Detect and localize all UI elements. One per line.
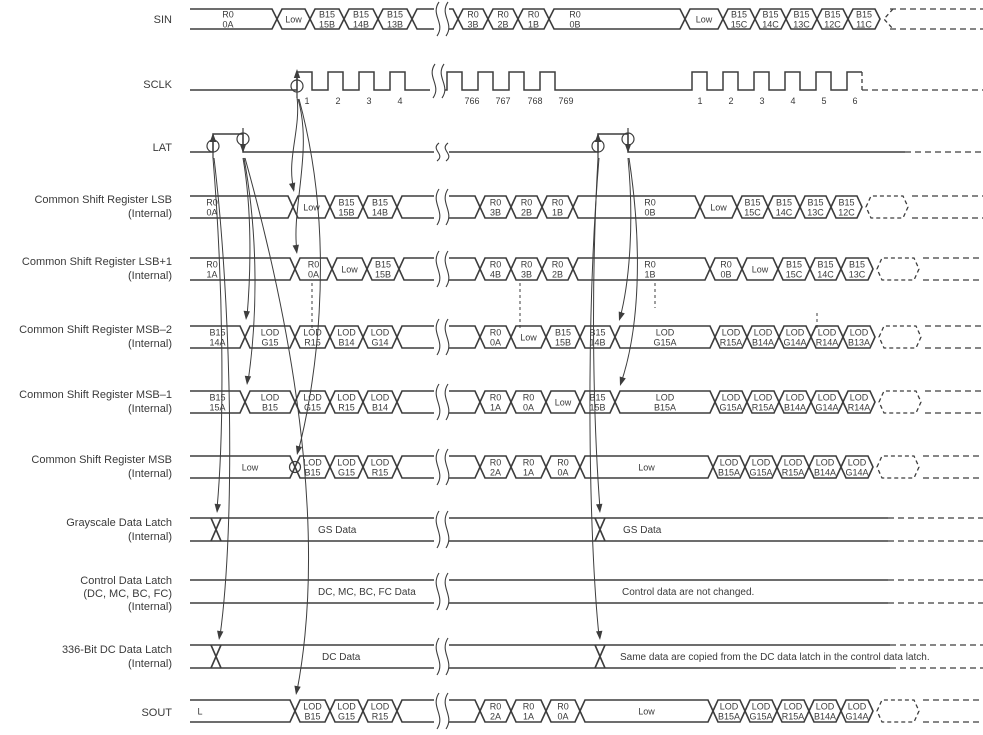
bus-cell-label: 13C: [849, 270, 866, 280]
bus-cell-label: LOD: [656, 328, 675, 338]
clock-number: 1: [304, 96, 309, 106]
bus-cell-label: LOD: [261, 393, 280, 403]
row-sin: SINR00ALowB1515BB1514BB1513BR03BR02BR01B…: [154, 2, 983, 36]
bus-cell-label: LOD: [816, 458, 835, 468]
bus-cell-label: G15: [338, 468, 355, 478]
bus-cell-label: B15: [838, 198, 854, 208]
bus-cell-label: Low: [520, 333, 537, 343]
row-label: Common Shift Register LSB+1: [22, 256, 172, 268]
bus-cell-label: 14C: [776, 208, 793, 218]
arrowhead: [596, 631, 603, 641]
bus-cell-label: LOD: [337, 458, 356, 468]
bus-cell-label: 0B: [569, 20, 580, 30]
bus-cell-label: R0: [644, 198, 656, 208]
bus-cell-label: LOD: [303, 458, 322, 468]
bus-cell-label: G14A: [783, 338, 806, 348]
clock-number: 5: [821, 96, 826, 106]
bus-cell-label: G14A: [845, 712, 868, 722]
bus-cell-label: LOD: [752, 702, 771, 712]
bus-cell-label: R14A: [816, 338, 839, 348]
row-label: Common Shift Register MSB–2: [19, 324, 172, 336]
bus-cell-label: G15: [338, 712, 355, 722]
bus-cell-label: R15: [304, 338, 321, 348]
bus-cell-label: 15B: [319, 20, 335, 30]
latch-transition: [595, 645, 605, 668]
bus-cell-label: R15: [372, 468, 389, 478]
bus-cell-label: B15: [807, 198, 823, 208]
bus-cell-label: LOD: [848, 458, 867, 468]
bus-cell-label: 3B: [467, 20, 478, 30]
bus-cell-label: 1B: [528, 20, 539, 30]
row-csr-lsb: Common Shift Register LSB(Internal)R00AL…: [34, 189, 983, 225]
bus-cell-label: LOD: [818, 393, 837, 403]
dashed-cell: [866, 196, 908, 218]
latch-transition: [211, 518, 221, 541]
bus-cell-label: B15: [589, 393, 605, 403]
bus-cell-label: B14A: [814, 468, 836, 478]
bus-cell-label: R0: [490, 198, 502, 208]
dashed-guides: [312, 283, 817, 331]
bus-cell-label: G14A: [845, 468, 868, 478]
bus-cell-label: 1A: [523, 468, 534, 478]
bus-cell-label: B15: [304, 712, 320, 722]
latch-text: Control data are not changed.: [622, 587, 754, 598]
bus-cell-label: R15A: [720, 338, 743, 348]
bus-cell-label: Low: [242, 463, 259, 473]
bus-cell-label: R15: [338, 403, 355, 413]
bus-cell-label: B15: [793, 10, 809, 20]
row-csr-msb1: Common Shift Register MSB–1(Internal)B15…: [19, 384, 983, 420]
annotation-arrow: [245, 158, 309, 691]
bus-cell-label: B14A: [814, 712, 836, 722]
dashed-cell: [877, 258, 919, 280]
bus-cell-label: R14A: [848, 403, 871, 413]
bus-cell-label: LOD: [303, 702, 322, 712]
bus-cell-label: R0: [490, 328, 502, 338]
bus-cell-label: B15: [375, 260, 391, 270]
arrowhead: [293, 686, 301, 696]
row-label: Control Data Latch: [80, 575, 172, 587]
bus-cell-label: B15A: [718, 468, 740, 478]
bus-cell-label: R0: [308, 260, 320, 270]
bus-cell-label: 2B: [521, 208, 532, 218]
row-csr-msb: Common Shift Register MSB(Internal)LowLO…: [31, 449, 983, 485]
arrowhead: [243, 311, 250, 321]
bus-cell-label: Low: [341, 265, 358, 275]
bus-cell-label: Low: [710, 203, 727, 213]
bus-cell-label: LOD: [371, 702, 390, 712]
bus-cell-label: 15B: [375, 270, 391, 280]
bus-cell-label: R0: [523, 458, 535, 468]
latch-transition: [595, 518, 605, 541]
bus-cell-label: 15B: [338, 208, 354, 218]
latch-text: DC, MC, BC, FC Data: [318, 587, 416, 598]
bus-cell-label: Low: [696, 15, 713, 25]
bus-cell-label: B15: [786, 260, 802, 270]
row-label: (Internal): [128, 531, 172, 543]
dashed-cell: [877, 700, 919, 722]
bus-cell-label: R0: [644, 260, 656, 270]
bus-cell-label: LOD: [303, 328, 322, 338]
bus-cell-label: LOD: [337, 702, 356, 712]
clock-number: 4: [790, 96, 795, 106]
bus-cell-label: R0: [467, 10, 479, 20]
row-label: (Internal): [128, 403, 172, 415]
bus-cell-label: 14B: [372, 208, 388, 218]
bus-cell-label: 1B: [552, 208, 563, 218]
bus-cell-label: LOD: [371, 393, 390, 403]
row-label: SCLK: [143, 79, 172, 91]
bus-cell-label: R15: [372, 712, 389, 722]
arrowhead: [294, 69, 300, 78]
clock-number: 767: [495, 96, 510, 106]
bus-cell-label: R0: [490, 260, 502, 270]
bus-cell-label: 15C: [731, 20, 748, 30]
annotation-arrow: [243, 158, 250, 317]
bus-cell-label: R15A: [782, 712, 805, 722]
dashed-cell: [879, 326, 921, 348]
bus-cell-label: G15: [304, 403, 321, 413]
row-label: SIN: [154, 14, 172, 26]
bus-cell-label: B15: [856, 10, 872, 20]
row-label: Common Shift Register MSB: [31, 454, 172, 466]
bus-cell-label: R0: [521, 260, 533, 270]
bus-cell-label: G14: [371, 338, 388, 348]
bus-cell-label: LOD: [754, 393, 773, 403]
bus-cell: [573, 196, 700, 218]
bus-cell-label: 3B: [521, 270, 532, 280]
row-label: Common Shift Register MSB–1: [19, 389, 172, 401]
bus-cell-label: R0: [497, 10, 509, 20]
arrowhead: [214, 504, 221, 514]
bus-cell-label: B15: [387, 10, 403, 20]
bus-cell-label: G15A: [653, 338, 676, 348]
bus-cell-label: LOD: [818, 328, 837, 338]
bus-cell-label: 14C: [817, 270, 834, 280]
bus-cell-label: 0A: [523, 403, 534, 413]
bus-cell-label: 0A: [222, 20, 233, 30]
bus-cell-label: 2A: [490, 712, 501, 722]
bus-cell-label: 2B: [552, 270, 563, 280]
bus-cell: [190, 700, 295, 722]
bus-cell-label: R0: [557, 458, 569, 468]
bus-cell-label: 15A: [209, 403, 225, 413]
bus-cell-label: R0: [528, 10, 540, 20]
bus-cell-label: B15: [776, 198, 792, 208]
bus-cell-label: LOD: [786, 328, 805, 338]
bus-cell-label: B15: [372, 198, 388, 208]
bus-cell-label: B15: [338, 198, 354, 208]
bus-cell-label: 3B: [490, 208, 501, 218]
bus-cell-label: R0: [490, 458, 502, 468]
row-label: (Internal): [128, 270, 172, 282]
dashed-cell: [879, 391, 921, 413]
bus-cell-label: LOD: [722, 393, 741, 403]
row-sclk: SCLK1234766767768769123456: [143, 64, 983, 106]
bus-cell-label: B14: [372, 403, 388, 413]
row-label: (DC, MC, BC, FC): [83, 588, 172, 600]
bus-cell-label: 0A: [557, 468, 568, 478]
row-gs-latch: Grayscale Data Latch(Internal)GS DataGS …: [66, 511, 983, 548]
bus-cell-label: 0A: [490, 338, 501, 348]
bus-cell-label: B15: [817, 260, 833, 270]
timing-diagram-figure: SINR00ALowB1515BB1514BB1513BR03BR02BR01B…: [0, 0, 983, 735]
bus-cell-label: R0: [490, 702, 502, 712]
arrowhead: [617, 376, 626, 387]
bus-cell-label: R15A: [752, 403, 775, 413]
bus-cell-label: B15: [824, 10, 840, 20]
arrowhead: [596, 504, 603, 514]
bus-cell-label: B15: [849, 260, 865, 270]
bus-cell-label: G14A: [815, 403, 838, 413]
bus-cell-label: B15A: [718, 712, 740, 722]
bus-cell-label: LOD: [371, 458, 390, 468]
bus-cell-label: Low: [555, 398, 572, 408]
bus-cell-label: 0A: [557, 712, 568, 722]
bus-cell-label: B14: [338, 338, 354, 348]
bus-cell-label: LOD: [720, 702, 739, 712]
bus-cell-label: LOD: [784, 702, 803, 712]
bus-cell-label: LOD: [784, 458, 803, 468]
bus-cell-label: R0: [552, 260, 564, 270]
annotation-arrow: [620, 158, 631, 318]
dashed-chevron: [884, 9, 893, 29]
bus-cell-label: R0: [222, 10, 234, 20]
bus-cell-label: 11C: [856, 20, 872, 30]
bus-cell-label: LOD: [850, 393, 869, 403]
row-label: (Internal): [128, 338, 172, 350]
clock-number: 4: [397, 96, 402, 106]
row-label: (Internal): [128, 601, 172, 613]
bus-cell-label: 1A: [490, 403, 501, 413]
bus-cell-label: 13C: [807, 208, 824, 218]
bus-cell-label: 1B: [644, 270, 655, 280]
bus-cell-label: LOD: [848, 702, 867, 712]
bus-cell-label: L: [197, 707, 202, 717]
bus-cell-label: LOD: [656, 393, 675, 403]
bus-cell-label: B15: [589, 328, 605, 338]
clock-number: 769: [558, 96, 573, 106]
row-ctrl-latch: Control Data Latch(DC, MC, BC, FC)(Inter…: [80, 573, 983, 613]
bus-cell-label: B15: [731, 10, 747, 20]
bus-cell-label: B15: [304, 468, 320, 478]
row-label: Grayscale Data Latch: [66, 517, 172, 529]
row-csr-msb2: Common Shift Register MSB–2(Internal)B15…: [19, 319, 983, 355]
bus-cell-label: 14A: [209, 338, 225, 348]
row-label: (Internal): [128, 208, 172, 220]
bus-cell-label: 0B: [720, 270, 731, 280]
arrowhead: [244, 376, 251, 386]
bus-cell-label: 15C: [744, 208, 761, 218]
bus-cell-label: LOD: [337, 328, 356, 338]
bus-cell-label: G15A: [719, 403, 742, 413]
bus-cell-label: LOD: [816, 702, 835, 712]
row-label: LAT: [153, 142, 173, 154]
bus-cell-label: 13C: [793, 20, 810, 30]
clock-number: 3: [366, 96, 371, 106]
bus-cell-label: B13A: [848, 338, 870, 348]
bus-cell-label: B15: [319, 10, 335, 20]
bus-cell-label: B15: [209, 328, 225, 338]
row-sout: SOUTLLODB15LODG15LODR15R02AR01AR00ALowLO…: [141, 693, 983, 729]
bus-cell-label: G15: [261, 338, 278, 348]
latch-text: Same data are copied from the DC data la…: [620, 652, 930, 663]
bus-cell-label: B15: [262, 403, 278, 413]
annotation-arrow: [621, 158, 637, 383]
bus-cell-label: 2B: [497, 20, 508, 30]
bus-cell-label: R0: [206, 260, 218, 270]
bus-cell-label: 4B: [490, 270, 501, 280]
clock-number: 1: [697, 96, 702, 106]
row-csr-lsb1: Common Shift Register LSB+1(Internal)R01…: [22, 251, 983, 287]
bus-cell-label: LOD: [850, 328, 869, 338]
bus-cell-label: Low: [285, 15, 302, 25]
pulse-waveform: [190, 134, 905, 152]
bus-cell-label: B14A: [784, 403, 806, 413]
bus-cell-label: 0B: [644, 208, 655, 218]
bus-cell-label: 12C: [824, 20, 841, 30]
bus-cell-label: R15A: [782, 468, 805, 478]
bus-cell-label: 15B: [589, 403, 605, 413]
latch-text: GS Data: [623, 525, 662, 536]
arrowhead: [289, 183, 297, 193]
clock-number: 3: [759, 96, 764, 106]
clock-number: 2: [335, 96, 340, 106]
bus-cell-label: LOD: [720, 458, 739, 468]
arrowhead: [216, 631, 224, 641]
row-dc-latch: 336-Bit DC Data Latch(Internal)DC DataSa…: [62, 638, 983, 675]
bus-cell-label: R0: [523, 702, 535, 712]
dashed-cell: [877, 456, 919, 478]
latch-transition: [211, 645, 221, 668]
arrowhead: [293, 245, 301, 255]
bus-cell-label: R0: [569, 10, 581, 20]
bus-cell-label: R0: [552, 198, 564, 208]
bus-cell-label: 0A: [206, 208, 217, 218]
annotation-arrow: [292, 97, 298, 190]
bus-cell-label: 15B: [555, 338, 571, 348]
bus-cell-label: Low: [752, 265, 769, 275]
bus-cell-label: B15: [762, 10, 778, 20]
bus-cell-label: B15: [744, 198, 760, 208]
bus-cell-label: B14A: [752, 338, 774, 348]
bus-cell-label: B15: [353, 10, 369, 20]
bus-cell-label: B15: [209, 393, 225, 403]
bus-cell-label: LOD: [261, 328, 280, 338]
row-label: (Internal): [128, 468, 172, 480]
row-lat: LAT: [153, 128, 983, 161]
bus-cell-label: G15A: [749, 712, 772, 722]
bus-cell-label: LOD: [371, 328, 390, 338]
bus-cell-label: LOD: [786, 393, 805, 403]
bus-cell-label: 14C: [762, 20, 779, 30]
bus-cell-label: G15A: [749, 468, 772, 478]
bus-cell-label: R0: [490, 393, 502, 403]
bus-cell-label: 1A: [206, 270, 217, 280]
arrowhead: [616, 311, 625, 322]
row-label: (Internal): [128, 658, 172, 670]
bus-cell-label: 15C: [786, 270, 803, 280]
bus-cell-label: 13B: [387, 20, 403, 30]
latch-text: GS Data: [318, 525, 357, 536]
bus-cell-label: 14B: [589, 338, 605, 348]
bus-cell-label: Low: [638, 707, 655, 717]
row-label: Common Shift Register LSB: [34, 194, 172, 206]
timing-diagram: SINR00ALowB1515BB1514BB1513BR03BR02BR01B…: [0, 0, 983, 735]
clock-number: 6: [852, 96, 857, 106]
bus-cell-label: B15A: [654, 403, 676, 413]
bus-cell-label: LOD: [337, 393, 356, 403]
clock-number: 768: [527, 96, 542, 106]
bus-cell-label: Low: [638, 463, 655, 473]
latch-text: DC Data: [322, 652, 361, 663]
bus-cell-label: LOD: [303, 393, 322, 403]
bus-cell-label: R0: [521, 198, 533, 208]
bus-cell-label: 2A: [490, 468, 501, 478]
bus-cell-label: 0A: [308, 270, 319, 280]
bus-cell-label: LOD: [722, 328, 741, 338]
bus-cell-label: R0: [720, 260, 732, 270]
bus-cell-label: LOD: [754, 328, 773, 338]
bus-cell-label: 12C: [838, 208, 855, 218]
bus-cell-label: R0: [557, 702, 569, 712]
bus-cell-label: B15: [555, 328, 571, 338]
bus-cell-label: 1A: [523, 712, 534, 722]
bus-cell-label: LOD: [752, 458, 771, 468]
bus-cell-label: 14B: [353, 20, 369, 30]
arrowhead: [294, 446, 302, 456]
clock-number: 2: [728, 96, 733, 106]
row-label: SOUT: [141, 707, 172, 719]
bus-cell-label: R0: [523, 393, 535, 403]
row-label: 336-Bit DC Data Latch: [62, 644, 172, 656]
clock-number: 766: [464, 96, 479, 106]
